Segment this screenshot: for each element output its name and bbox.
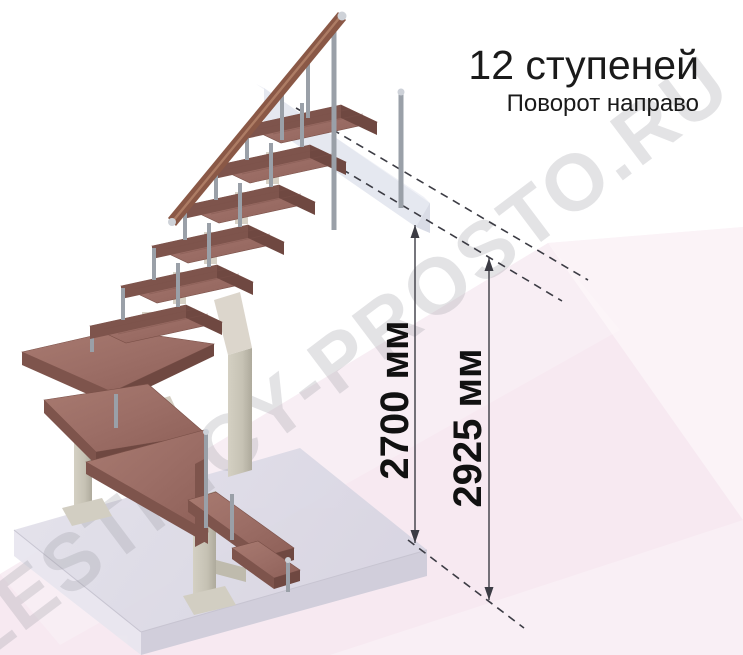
stair-diagram-screenshot: LESTNICY-PROSTO.RU bbox=[0, 0, 743, 655]
baluster-cap bbox=[285, 557, 291, 563]
steps-count-title: 12 ступеней bbox=[468, 42, 699, 88]
baluster-cap bbox=[203, 429, 209, 435]
baluster-cap bbox=[398, 89, 405, 96]
turn-direction-subtitle: Поворот направо bbox=[507, 90, 699, 117]
dimension-label-total-height: 2925 мм bbox=[446, 348, 490, 507]
dimension-label-opening-height: 2700 мм bbox=[373, 320, 417, 479]
handrail-top-cap bbox=[338, 12, 347, 21]
handrail-end-cap bbox=[168, 218, 176, 226]
central-column bbox=[228, 348, 252, 477]
stair-diagram-illustration: LESTNICY-PROSTO.RU bbox=[0, 0, 743, 655]
